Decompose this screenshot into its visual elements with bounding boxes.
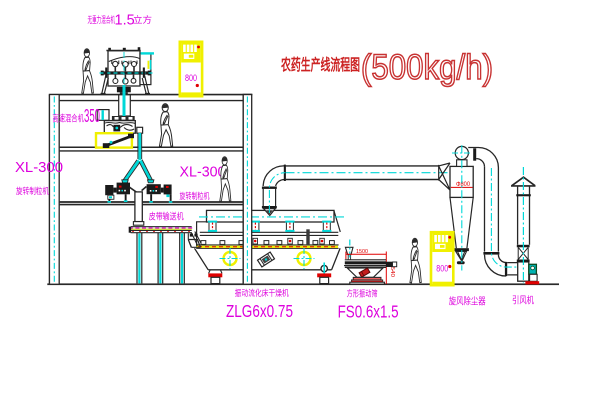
svg-text:农药生产线流程图: 农药生产线流程图 (280, 55, 360, 74)
svg-text:旋风除尘器: 旋风除尘器 (449, 296, 486, 308)
svg-text:1.5: 1.5 (115, 12, 135, 28)
svg-text:1500: 1500 (356, 249, 368, 255)
svg-text:立方: 立方 (133, 14, 152, 25)
svg-text:ZLG6x0.75: ZLG6x0.75 (226, 301, 293, 321)
svg-text:800: 800 (436, 264, 448, 275)
svg-text:FS0.6x1.5: FS0.6x1.5 (338, 302, 399, 322)
svg-text:XL-300: XL-300 (180, 165, 226, 181)
svg-text:引风机: 引风机 (512, 295, 534, 307)
svg-text:方形振动筛: 方形振动筛 (347, 288, 378, 299)
svg-text:(500kg/h): (500kg/h) (361, 48, 493, 87)
svg-text:540: 540 (389, 267, 395, 278)
svg-text:无重力混合机: 无重力混合机 (88, 14, 116, 25)
svg-text:800: 800 (185, 73, 197, 84)
svg-text:振动流化床干燥机: 振动流化床干燥机 (235, 287, 289, 298)
svg-text:高速混合机: 高速混合机 (52, 113, 84, 124)
svg-text:皮带输送机: 皮带输送机 (149, 210, 184, 221)
svg-text:XL-300: XL-300 (15, 160, 63, 176)
svg-text:旋转制粒机: 旋转制粒机 (16, 185, 49, 196)
svg-text:Φ800: Φ800 (456, 182, 471, 188)
svg-text:旋转制粒机: 旋转制粒机 (180, 190, 210, 201)
svg-text:350: 350 (84, 106, 100, 126)
